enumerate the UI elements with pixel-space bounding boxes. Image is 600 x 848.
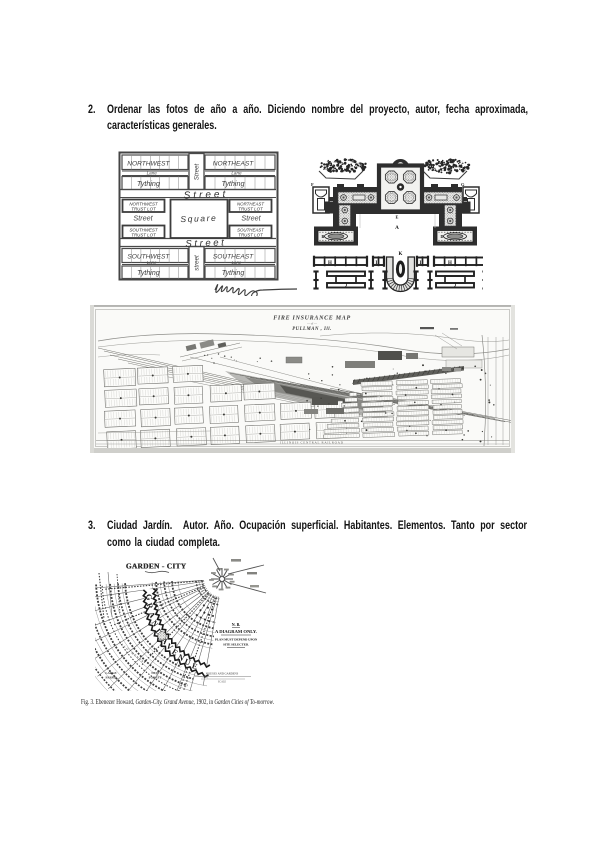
svg-text:Lane: Lane: [231, 171, 242, 176]
svg-text:GARDEN - CITY: GARDEN - CITY: [126, 562, 187, 571]
svg-text:Lane: Lane: [147, 171, 158, 176]
svg-text:PULLMAN , Ill.: PULLMAN , Ill.: [292, 327, 332, 332]
svg-text:Tythinɡ: Tythinɡ: [137, 270, 160, 277]
svg-text:A DIAGRAM ONLY.: A DIAGRAM ONLY.: [215, 629, 257, 634]
svg-text:Street: Street: [133, 214, 153, 223]
svg-text:H: H: [328, 261, 332, 266]
svg-text:street: street: [194, 255, 201, 271]
svg-text:H: H: [448, 261, 452, 266]
svg-text:Tythinɡ: Tythinɡ: [137, 179, 160, 188]
svg-text:Lane: Lane: [232, 260, 242, 265]
svg-text:TRUST LOT: TRUST LOT: [131, 232, 156, 237]
svg-text:Square: Square: [180, 213, 217, 224]
svg-text:LARGE: LARGE: [105, 671, 116, 675]
svg-text:ALLOTMENTS: ALLOTMENTS: [118, 641, 144, 664]
svg-text:TRUST LOT: TRUST LOT: [238, 232, 263, 237]
svg-text:ILLINOIS CENTRAL RAILROAD: ILLINOIS CENTRAL RAILROAD: [280, 441, 344, 445]
svg-text:PLAN MUST DEPEND UPON: PLAN MUST DEPEND UPON: [215, 638, 258, 642]
svg-text:HOUSES AND GARDENS: HOUSES AND GARDENS: [206, 672, 239, 676]
svg-text:TRUST LOT: TRUST LOT: [238, 206, 263, 211]
svg-text:NORTHEAST: NORTHEAST: [213, 160, 255, 167]
svg-text:Tythinɡ: Tythinɡ: [222, 270, 245, 277]
svg-text:K: K: [399, 252, 403, 257]
svg-text:FOREST: FOREST: [149, 676, 163, 680]
svg-text:I: I: [419, 261, 421, 266]
svg-text:Street: Street: [194, 163, 201, 180]
svg-text:TRUST LOT: TRUST LOT: [131, 206, 156, 211]
svg-text:SCALE: SCALE: [218, 681, 227, 684]
svg-text:A: A: [395, 225, 399, 231]
svg-text:E: E: [396, 215, 399, 220]
svg-text:D: D: [441, 234, 444, 239]
svg-text:Lane: Lane: [147, 260, 157, 265]
svg-text:NEW: NEW: [151, 671, 159, 675]
svg-text:B: B: [322, 234, 325, 239]
svg-text:NORTHWEST: NORTHWEST: [127, 160, 170, 167]
svg-text:— of —: — of —: [306, 322, 318, 326]
svg-text:SITE SELECTED.: SITE SELECTED.: [223, 643, 249, 647]
svg-text:Street: Street: [241, 214, 261, 223]
svg-text:Street: Street: [185, 237, 226, 249]
svg-text:Tythinɡ: Tythinɡ: [221, 179, 244, 188]
svg-text:FARMS: FARMS: [105, 676, 116, 680]
svg-text:N. B.: N. B.: [232, 622, 241, 627]
svg-text:I: I: [375, 261, 377, 266]
